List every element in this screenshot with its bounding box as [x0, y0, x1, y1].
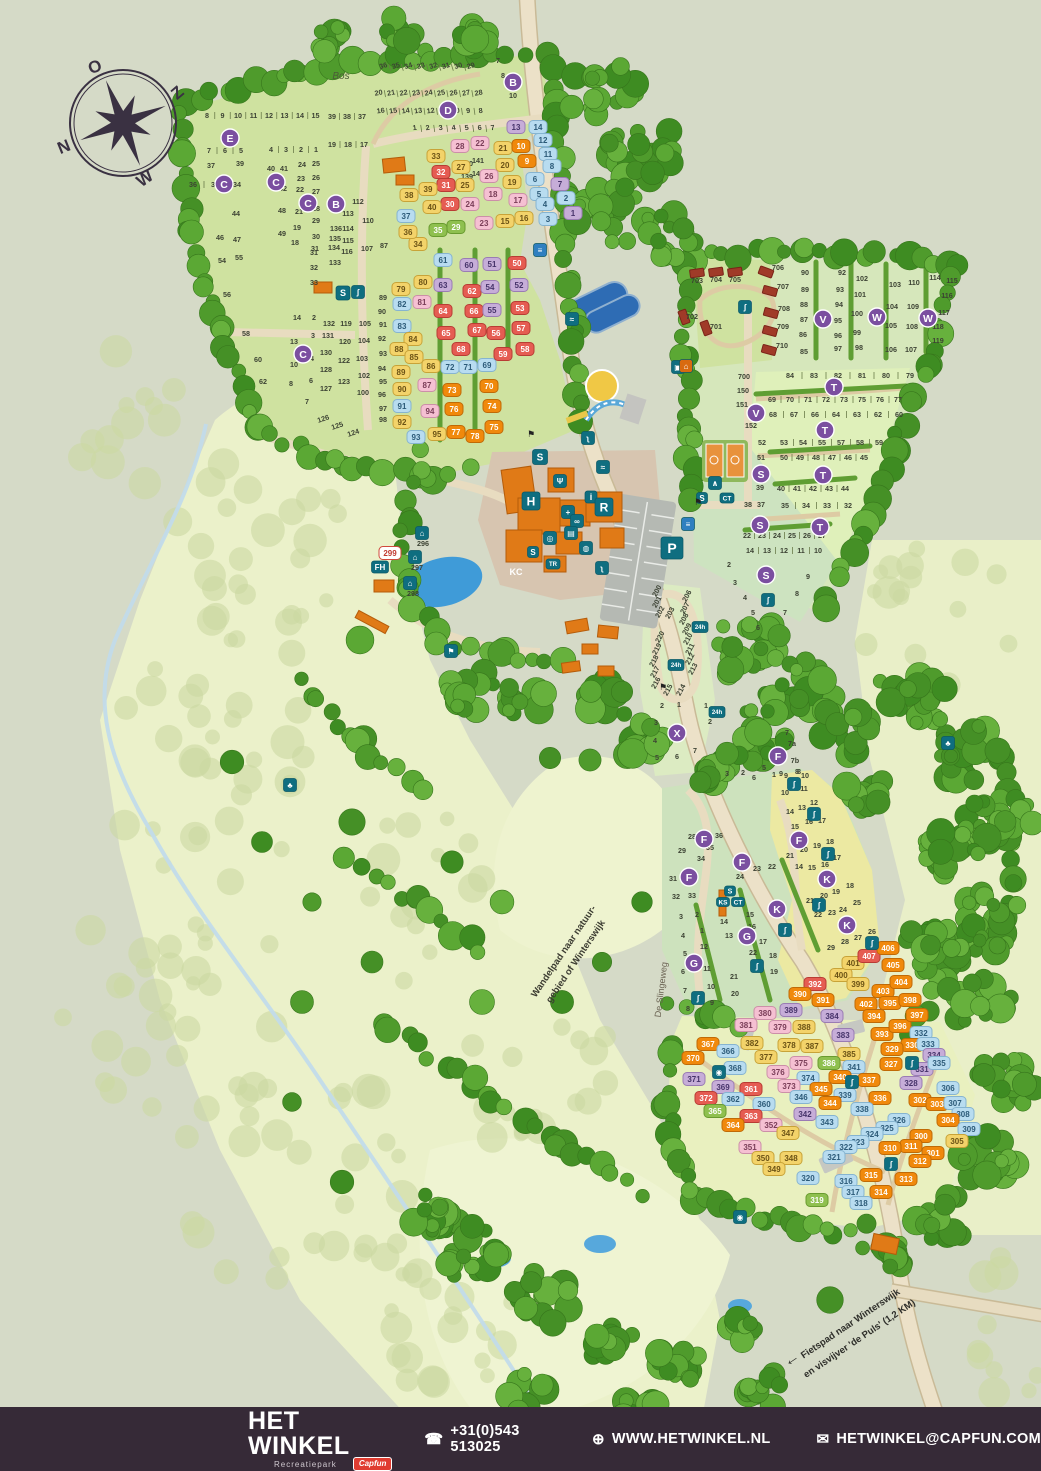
- plot-number: 41: [793, 484, 801, 493]
- pale-tree: [553, 1018, 570, 1035]
- plot-chip-number: 38: [405, 191, 414, 200]
- pale-tree: [978, 1377, 1010, 1409]
- tree: [663, 1064, 677, 1078]
- plot-number: 4: [743, 593, 747, 602]
- tree: [744, 704, 758, 718]
- plot-chip-number: 8: [550, 162, 555, 171]
- facility-icon-glyph: ʃ: [696, 994, 700, 1003]
- tree: [252, 832, 273, 853]
- plot-number: 79: [906, 371, 914, 380]
- plot-chip-number: 320: [801, 1174, 815, 1183]
- plot-number: 298: [407, 589, 419, 598]
- facility-icon-glyph: i: [590, 492, 593, 502]
- plot-chip-number: 393: [875, 1030, 889, 1039]
- plot-chip-number: 344: [823, 1099, 837, 1108]
- facility-icon-glyph: KS: [718, 899, 728, 906]
- plot-number: 7b: [791, 756, 800, 765]
- tree: [330, 1170, 354, 1194]
- pale-tree: [251, 513, 285, 547]
- plot-number: 707: [777, 282, 789, 291]
- plot-number: 4: [269, 145, 273, 154]
- entrance-flag-icon: ⚑: [659, 682, 667, 692]
- section-badge-letter: F: [739, 857, 746, 869]
- plot-number: 3: [311, 331, 315, 340]
- plot-chip-number: 1: [571, 209, 576, 218]
- plot-chip-number: 36: [404, 228, 413, 237]
- pale-tree: [978, 1315, 997, 1334]
- plot-chip-number: 39: [424, 185, 433, 194]
- tree: [921, 935, 941, 955]
- pale-tree: [1000, 635, 1018, 653]
- tree: [901, 392, 921, 412]
- plot-chip-number: 14: [534, 123, 543, 132]
- plot-number: 53: [780, 438, 788, 447]
- tree: [789, 689, 808, 708]
- pale-tree: [121, 1047, 151, 1077]
- tree: [681, 1168, 696, 1183]
- plot-number: 18: [769, 951, 777, 960]
- pale-tree: [229, 547, 253, 571]
- plot-number: 34: [233, 180, 241, 189]
- plot-number: 75: [858, 395, 866, 404]
- plot-chip-number: 86: [427, 362, 436, 371]
- pale-tree: [205, 730, 220, 745]
- tree: [388, 758, 405, 775]
- plot-number: 12: [780, 546, 788, 555]
- plot-number: 90: [801, 268, 809, 277]
- pale-tree: [155, 725, 182, 752]
- pale-tree: [986, 1361, 1003, 1378]
- plot-number: 69: [768, 395, 776, 404]
- pale-tree: [188, 533, 214, 559]
- tree: [193, 277, 213, 297]
- plot-number: 12: [700, 942, 708, 951]
- tree: [863, 241, 885, 263]
- plot-chip-number: 92: [398, 418, 407, 427]
- pale-tree: [990, 1247, 1011, 1268]
- facility-icon-glyph: ʃ: [889, 1160, 893, 1169]
- plot-number: 22: [296, 185, 304, 194]
- plot-number: 25: [312, 159, 320, 168]
- plot-chip-number: 333: [921, 1040, 935, 1049]
- pale-tree: [166, 1045, 188, 1067]
- tree: [555, 250, 572, 267]
- tree: [632, 892, 653, 913]
- tree: [461, 25, 489, 53]
- tree: [933, 712, 948, 727]
- tree: [962, 896, 976, 910]
- plot-number: 114: [929, 273, 941, 282]
- pale-tree: [148, 404, 181, 437]
- tree: [512, 694, 528, 710]
- plot-number: 95: [379, 377, 387, 386]
- tree: [972, 1063, 995, 1086]
- pale-tree: [128, 937, 160, 969]
- park-map-page: 8910111213141576543213635343332313029202…: [0, 0, 1041, 1471]
- tree: [275, 438, 289, 452]
- plot-number: 2: [299, 145, 303, 154]
- tree: [777, 245, 790, 258]
- tree: [833, 772, 861, 800]
- plot-number: 296: [417, 539, 429, 548]
- barn: [396, 175, 414, 185]
- phone-number: +31(0)543 513025: [450, 1423, 546, 1455]
- section-badge-letter: T: [820, 470, 827, 482]
- tree: [971, 846, 985, 860]
- tree: [295, 672, 309, 686]
- plot-chip-number: 373: [782, 1082, 796, 1091]
- plot-number: 18: [826, 837, 834, 846]
- phone-contact[interactable]: ☎ +31(0)543 513025: [424, 1423, 546, 1455]
- facility-icon-glyph: ʃ: [743, 303, 747, 312]
- tree: [740, 1378, 757, 1395]
- pale-tree: [282, 605, 302, 625]
- plot-number: 12: [426, 106, 435, 116]
- plot-chip-number: 361: [744, 1085, 758, 1094]
- plot-chip-number: 90: [398, 385, 407, 394]
- plot-chip-number: 95: [433, 430, 442, 439]
- plot-number: 27: [461, 87, 470, 97]
- plot-number: 19: [770, 967, 778, 976]
- plot-chip-number: 338: [855, 1105, 869, 1114]
- plot-number: 106: [885, 345, 897, 354]
- plot-chip-number: 9: [525, 157, 530, 166]
- plot-number: 96: [834, 331, 842, 340]
- email-address: HETWINKEL@CAPFUN.COM: [836, 1431, 1041, 1447]
- tree: [592, 952, 611, 971]
- plot-number: 54: [218, 256, 226, 265]
- plot-number: 44: [841, 484, 849, 493]
- plot-number: 76: [876, 395, 884, 404]
- tennis-courts: [702, 440, 748, 482]
- facility-icon-glyph: 24h: [712, 710, 723, 716]
- tree: [612, 58, 630, 76]
- plot-number: 32: [672, 892, 680, 901]
- plot-number: 1: [772, 770, 776, 779]
- plot-chip-number: 396: [893, 1022, 907, 1031]
- plot-number: 21: [730, 972, 738, 981]
- facility-icon-glyph: ʃ: [356, 288, 360, 297]
- plot-number: 10: [814, 546, 822, 555]
- pale-tree: [278, 640, 305, 667]
- plot-number: 39: [328, 112, 336, 121]
- plot-number: 1: [700, 926, 704, 935]
- plot-number: 13: [763, 546, 771, 555]
- tree: [845, 708, 862, 725]
- plot-chip-number: 25: [461, 181, 470, 190]
- plot-number: 26: [449, 87, 458, 97]
- facility-icon-glyph: ʃ: [783, 926, 787, 935]
- plot-chip-number: 346: [794, 1093, 808, 1102]
- plot-number: 41: [280, 164, 288, 173]
- plot-number: 7: [207, 146, 211, 155]
- plot-number: 5: [683, 949, 687, 958]
- plot-number: 24: [298, 160, 306, 169]
- pale-tree: [240, 1106, 260, 1126]
- plot-chip-number: 349: [767, 1165, 781, 1174]
- plot-number: 4: [653, 736, 657, 745]
- tree: [674, 329, 689, 344]
- plot-number: 12: [265, 111, 273, 120]
- plot-chip-number: 7: [558, 180, 563, 189]
- plot-chip-number: 52: [515, 281, 524, 290]
- tree: [374, 756, 388, 770]
- section-badge-letter: S: [756, 520, 763, 532]
- plot-number: 14: [720, 917, 728, 926]
- park-name: HET WINKEL: [248, 1409, 378, 1459]
- website-contact[interactable]: ⊕ WWW.HETWINKEL.NL: [592, 1431, 771, 1447]
- tree: [592, 212, 611, 231]
- plot-chip-number: 329: [885, 1045, 899, 1054]
- tree: [972, 720, 986, 734]
- plot-number: 119: [932, 336, 944, 345]
- plot-number: 100: [851, 309, 863, 318]
- plot-chip-number: 352: [764, 1121, 778, 1130]
- plot-number: 46: [216, 233, 224, 242]
- pale-tree: [950, 601, 967, 618]
- tree: [333, 847, 354, 868]
- section-badge-letter: F: [796, 835, 803, 847]
- plot-number: 7: [305, 397, 309, 406]
- plot-chip-number: 397: [910, 1011, 924, 1020]
- pale-tree: [175, 1125, 199, 1149]
- plot-number: 134: [328, 243, 340, 252]
- plot-number: 110: [362, 216, 374, 225]
- plot-number: 14: [786, 807, 794, 816]
- plot-number: 116: [941, 291, 953, 300]
- facility-icon-glyph: ʅ: [600, 564, 604, 573]
- plot-number: 21: [386, 87, 395, 97]
- tree: [944, 749, 957, 762]
- plot-number: 56: [223, 290, 231, 299]
- section-badge-letter: E: [226, 133, 233, 145]
- plot-number: 62: [874, 410, 882, 419]
- plot-number: 110: [908, 278, 920, 287]
- pale-tree: [196, 467, 226, 497]
- plot-chip-number: 327: [884, 1060, 898, 1069]
- map-label: KC: [510, 567, 523, 577]
- tree: [537, 654, 552, 669]
- plot-number: 103: [889, 280, 901, 289]
- pale-tree: [119, 397, 135, 413]
- tree: [283, 1093, 302, 1112]
- plot-number: 35: [781, 501, 789, 510]
- plot-chip-number: 398: [903, 996, 917, 1005]
- plot-number: 34: [802, 501, 810, 510]
- facility-icon-glyph: 24h: [695, 625, 706, 631]
- plot-number: 1: [704, 701, 708, 710]
- pale-tree: [319, 593, 333, 607]
- plot-number: 39: [236, 159, 244, 168]
- tree: [573, 395, 589, 411]
- plot-number: 112: [352, 197, 364, 206]
- plot-chip-number: 94: [426, 407, 435, 416]
- plot-number: 2: [741, 768, 745, 777]
- plot-number: 63: [853, 410, 861, 419]
- facility-icon-glyph: ⌂: [420, 529, 425, 538]
- pale-tree: [987, 564, 1007, 584]
- plot-number: 28: [474, 87, 483, 97]
- facility-icon-glyph: ≈: [601, 463, 606, 472]
- plot-number: 2: [312, 313, 316, 322]
- plot-chip-number: 390: [793, 990, 807, 999]
- pale-tree: [1021, 1383, 1036, 1398]
- plot-chip-number: 388: [797, 1023, 811, 1032]
- tree: [717, 620, 730, 633]
- plot-number: 117: [938, 308, 950, 317]
- tree: [560, 95, 583, 118]
- plot-number: 93: [836, 285, 844, 294]
- plot-number: 16: [376, 106, 385, 116]
- plot-chip-number: 13: [512, 123, 521, 132]
- plot-number: 109: [907, 302, 919, 311]
- section-badge-letter: B: [332, 199, 340, 211]
- tree: [200, 82, 218, 100]
- plot-number: 49: [278, 229, 286, 238]
- plot-number: 14: [401, 106, 410, 116]
- tree: [451, 699, 465, 713]
- plot-number: 23: [828, 908, 836, 917]
- plot-chip-number: 65: [442, 329, 451, 338]
- plot-chip-number: 366: [721, 1047, 735, 1056]
- tree: [658, 1040, 684, 1066]
- plot-number: 91: [379, 320, 387, 329]
- plot-chip-number: 380: [758, 1009, 772, 1018]
- plot-number: 32: [310, 263, 318, 272]
- plot-number: 25: [788, 531, 796, 540]
- plot-number: 67: [790, 410, 798, 419]
- plot-number: 97: [834, 344, 842, 353]
- plot-number: 3: [733, 578, 737, 587]
- facility-icon-glyph: ♣: [945, 739, 951, 748]
- pale-tree: [279, 498, 306, 525]
- pale-tree: [194, 1095, 220, 1121]
- plot-number: 90: [378, 307, 386, 316]
- tree: [470, 990, 495, 1015]
- plot-number: 58: [242, 329, 250, 338]
- tree: [408, 1033, 427, 1052]
- pale-tree: [142, 1097, 161, 1116]
- tree: [180, 220, 204, 244]
- facility-icon-glyph: ≡: [538, 246, 543, 255]
- plot-chip-number: 318: [854, 1199, 868, 1208]
- pale-tree: [360, 887, 380, 907]
- plot-number: 8: [795, 589, 799, 598]
- email-contact[interactable]: ✉ HETWINKEL@CAPFUN.COM: [817, 1431, 1041, 1447]
- plot-number: 13: [725, 931, 733, 940]
- tree: [369, 459, 395, 485]
- pale-tree: [136, 387, 155, 406]
- plot-chip-number: 314: [874, 1188, 888, 1197]
- plot-number: 26: [312, 173, 320, 182]
- plot-chip-number: 364: [726, 1121, 740, 1130]
- plot-number: 32: [844, 501, 852, 510]
- plot-chip-number: 381: [739, 1021, 753, 1030]
- plot-number: 99: [853, 328, 861, 337]
- pale-tree: [54, 1009, 72, 1027]
- plot-chip-number: 35: [434, 226, 443, 235]
- pale-tree: [396, 1267, 410, 1281]
- plot-number: 7: [496, 56, 500, 65]
- tree: [718, 656, 744, 682]
- plot-number: 15: [791, 822, 799, 831]
- pale-tree: [181, 956, 210, 985]
- plot-number: 18: [344, 140, 352, 149]
- plot-chip-number: 32: [437, 168, 446, 177]
- plot-number: 71: [804, 395, 812, 404]
- plot-number: 92: [378, 334, 386, 343]
- section-badge-letter: C: [299, 349, 307, 361]
- tree: [527, 1118, 543, 1134]
- plot-number: 25: [853, 898, 861, 907]
- plot-chip-number: 306: [941, 1084, 955, 1093]
- tree: [954, 827, 970, 843]
- tree: [989, 937, 1006, 954]
- tree: [775, 678, 789, 692]
- pale-tree: [380, 1312, 412, 1344]
- plot-number: 55: [235, 253, 243, 262]
- plot-chip-number: 345: [814, 1085, 828, 1094]
- plot-chip-number: 335: [932, 1059, 946, 1068]
- plot-chip-number: 37: [402, 212, 411, 221]
- plot-chip-number: 85: [410, 353, 419, 362]
- plot-number: 31: [310, 248, 318, 257]
- plot-number: 7: [785, 728, 789, 737]
- plot-number: 131: [322, 331, 334, 340]
- plot-number: 48: [812, 453, 820, 462]
- plot-chip-number: 6: [533, 175, 538, 184]
- facility-icon-glyph: ʃ: [766, 596, 770, 605]
- plot-number: 29: [312, 216, 320, 225]
- pale-tree: [459, 833, 479, 853]
- plot-number: 15: [808, 863, 816, 872]
- tree: [831, 239, 858, 266]
- plot-number: 103: [356, 354, 368, 363]
- pale-tree: [889, 581, 910, 602]
- tree: [517, 1367, 531, 1381]
- pale-tree: [224, 710, 242, 728]
- plot-number: 66: [811, 410, 819, 419]
- shed: [598, 666, 614, 676]
- section-badge-letter: C: [304, 198, 312, 210]
- plot-chip-number: 394: [867, 1012, 881, 1021]
- pale-tree: [905, 644, 927, 666]
- plot-number: 6: [675, 752, 679, 761]
- plot-chip-number: 400: [834, 971, 848, 980]
- farm-building: [374, 580, 394, 592]
- plot-chip-number: 376: [771, 1068, 785, 1077]
- plot-chip-number: 61: [439, 256, 448, 265]
- pale-tree: [158, 935, 182, 959]
- plot-chip-number: 382: [745, 1039, 759, 1048]
- plot-number: 708: [778, 304, 790, 313]
- pale-tree: [114, 696, 138, 720]
- section-badge-letter: V: [752, 408, 759, 420]
- pale-tree: [183, 1217, 215, 1249]
- tree: [656, 144, 674, 162]
- plot-number: 6: [752, 773, 756, 782]
- plot-number: 8: [289, 379, 293, 388]
- pale-tree: [395, 812, 421, 838]
- plot-number: 49: [796, 453, 804, 462]
- facility-icon-glyph: ◍: [583, 544, 590, 553]
- plot-number: 27: [312, 187, 320, 196]
- plot-number: 10: [707, 982, 715, 991]
- tree: [817, 1287, 844, 1314]
- plot-number: 14: [746, 546, 754, 555]
- plot-number: 46: [844, 453, 852, 462]
- tree: [790, 664, 802, 676]
